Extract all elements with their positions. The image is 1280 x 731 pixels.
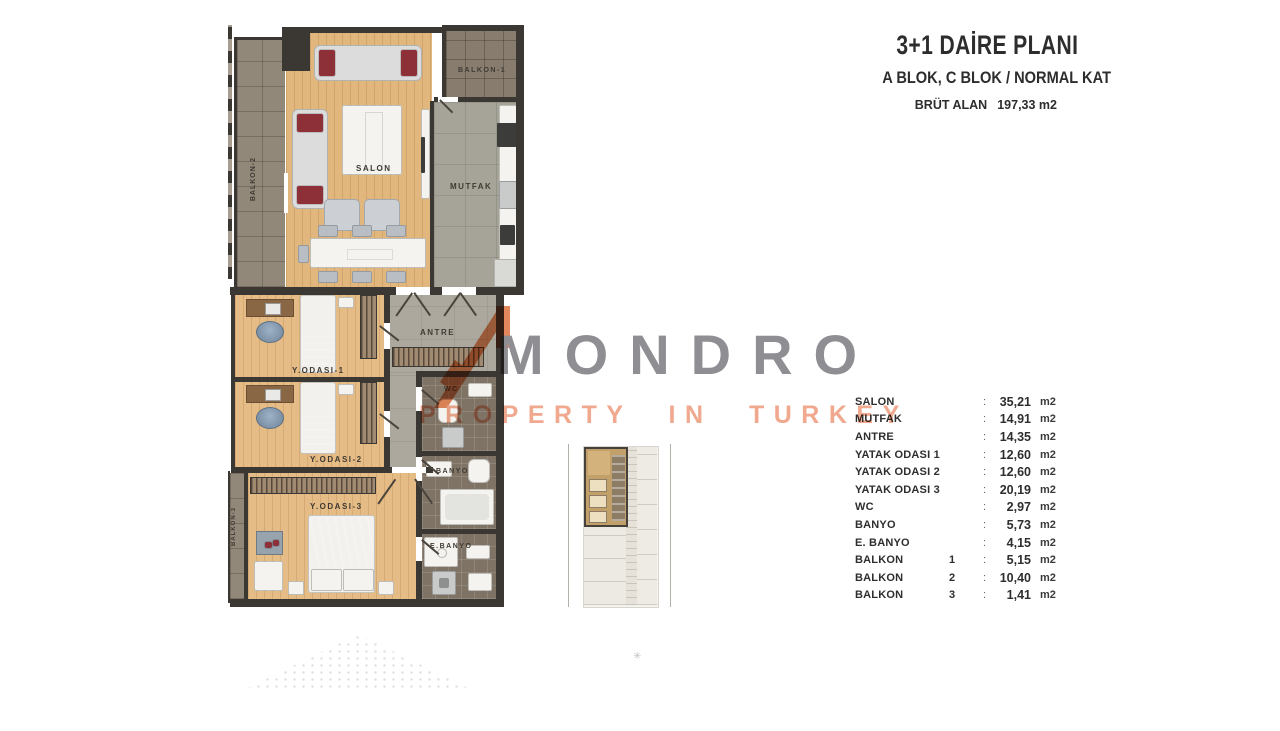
kitchen-cooktop	[500, 225, 515, 245]
gross-area-value: 197,33 m2	[997, 98, 1057, 112]
table-row: MUTFAK:14,91m2	[855, 411, 1063, 429]
wall	[442, 25, 524, 31]
label-balkon-1: BALKON-1	[458, 67, 506, 74]
kitchen-fridge	[494, 259, 517, 287]
room-balkon-2	[237, 39, 285, 287]
inset-faded-units-left	[584, 527, 626, 605]
label-balkon-2: BALKON-2	[250, 157, 257, 201]
table-row: BALKON1:5,15m2	[855, 551, 1063, 569]
sofa-top	[314, 45, 422, 81]
dining-table	[310, 238, 426, 268]
nightstand-bedroom1	[338, 297, 354, 308]
armchair-bedroom3	[254, 561, 283, 591]
label-banyo: BANYO	[436, 468, 469, 475]
wall	[230, 599, 504, 607]
page-background: SALON MUTFAK BALKON-1 BALKON-2 BALKON-3 …	[0, 0, 1280, 731]
wc-toilet	[438, 399, 458, 423]
label-yodasi-3: Y.ODASI-3	[310, 502, 363, 511]
banyo-bathtub	[440, 489, 494, 525]
dining-chair	[298, 245, 309, 263]
rug-bedroom3	[256, 531, 283, 555]
wall	[234, 37, 237, 289]
nightstand-bedroom2	[338, 384, 354, 395]
label-balkon-3: BALKON-3	[231, 507, 237, 546]
ebanyo-shower	[424, 537, 458, 567]
dining-chair	[352, 225, 372, 237]
page-subtitle: A BLOK, C BLOK / NORMAL KAT	[882, 68, 1111, 88]
wall	[416, 451, 496, 456]
bed-bedroom1	[300, 295, 336, 373]
wall-column	[282, 27, 310, 71]
table-row: ANTRE:14,35m2	[855, 428, 1063, 446]
label-e-banyo: E.BANYO	[430, 543, 472, 550]
sparkle-mark: ✳	[633, 651, 641, 662]
kitchen-oven	[497, 123, 517, 147]
desk-chair-bedroom1	[256, 321, 284, 343]
nightstand-bedroom3-left	[288, 581, 304, 595]
wc-sink	[468, 383, 492, 397]
wall	[430, 101, 434, 289]
table-row: BALKON2:10,40m2	[855, 569, 1063, 587]
area-table: SALON:35,21m2 MUTFAK:14,91m2 ANTRE:14,35…	[855, 393, 1063, 604]
table-row: WC:2,97m2	[855, 499, 1063, 517]
desk-bedroom2	[246, 385, 294, 403]
table-row: YATAK ODASI 2:12,60m2	[855, 463, 1063, 481]
wall	[496, 293, 504, 599]
room-balkon-1	[446, 29, 516, 98]
dining-chair	[318, 225, 338, 237]
title-block: 3+1 DAİRE PLANI A BLOK, C BLOK / NORMAL …	[845, 30, 1057, 112]
dining-chair	[386, 225, 406, 237]
dining-chair	[352, 271, 372, 283]
banyo-toilet	[468, 459, 490, 483]
desk-chair-bedroom2	[256, 407, 284, 429]
hallway-closet	[392, 347, 484, 367]
wall	[384, 295, 390, 473]
page-title: 3+1 DAİRE PLANI	[896, 30, 1078, 61]
label-yodasi-2: Y.ODASI-2	[310, 455, 363, 464]
ebanyo-washer	[432, 571, 456, 595]
label-salon: SALON	[356, 164, 392, 173]
key-plan-inset	[568, 442, 672, 610]
floor-plan: SALON MUTFAK BALKON-1 BALKON-2 BALKON-3 …	[228, 25, 546, 607]
wall	[235, 377, 385, 382]
label-antre: ANTRE	[420, 328, 455, 337]
label-yodasi-1: Y.ODASI-1	[292, 366, 345, 375]
dining-chair	[386, 271, 406, 283]
bed-bedroom3	[308, 515, 375, 593]
label-wc: WC	[444, 386, 459, 393]
wardrobe-bedroom1	[360, 295, 377, 359]
table-row: YATAK ODASI 3:20,19m2	[855, 481, 1063, 499]
tv-screen	[421, 137, 425, 173]
gross-area-label: BRÜT ALAN	[915, 98, 987, 112]
inset-right-rule	[670, 444, 671, 607]
sofa-left	[292, 109, 328, 209]
kitchen-sink	[499, 181, 517, 209]
inset-faded-units-right	[637, 447, 657, 605]
wall	[416, 529, 496, 534]
table-row: YATAK ODASI 1:12,60m2	[855, 446, 1063, 464]
wall	[230, 287, 524, 295]
wardrobe-bedroom2	[360, 382, 377, 444]
dining-chair	[318, 271, 338, 283]
wall	[234, 37, 284, 40]
key-plan-building	[583, 446, 659, 608]
wardrobe-bedroom3	[250, 477, 376, 494]
label-mutfak: MUTFAK	[450, 182, 492, 191]
window-wall	[228, 25, 232, 279]
watermark-layer: MONDRO PROPERTY IN TURKEY	[0, 0, 1280, 731]
ebanyo-cabinet	[468, 573, 492, 591]
bed-bedroom2	[300, 382, 336, 454]
watermark-brand: MONDRO	[497, 327, 878, 383]
table-row: E. BANYO:4,15m2	[855, 534, 1063, 552]
table-row: BALKON3:1,41m2	[855, 587, 1063, 605]
door-opening	[384, 411, 390, 437]
wall	[416, 371, 498, 377]
wc-washer	[442, 427, 464, 448]
wall	[231, 295, 235, 473]
inset-highlighted-unit	[584, 447, 628, 527]
desk-bedroom1	[246, 299, 294, 317]
gross-area: BRÜT ALAN197,33 m2	[845, 98, 1057, 112]
dot-pattern	[236, 634, 480, 690]
wall	[244, 473, 248, 599]
wall	[442, 29, 446, 99]
balcony-door-opening	[284, 173, 288, 213]
wall	[228, 471, 230, 603]
wall	[516, 25, 524, 295]
inset-left-rule	[568, 444, 569, 607]
nightstand-bedroom3-right	[378, 581, 394, 595]
table-row: SALON:35,21m2	[855, 393, 1063, 411]
table-row: BANYO:5,73m2	[855, 516, 1063, 534]
door-opening	[384, 323, 390, 349]
